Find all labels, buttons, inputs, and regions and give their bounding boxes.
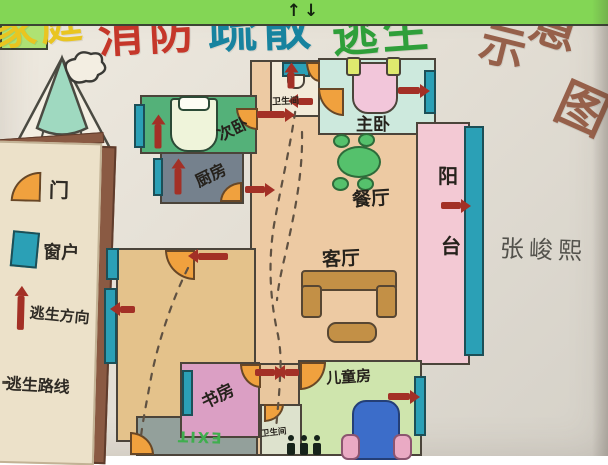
sofa-arm — [376, 285, 397, 318]
window-study — [182, 370, 193, 416]
elevator-people-icons — [0, 443, 608, 455]
legend-window-symbol — [10, 230, 40, 268]
escape-arrow-left — [120, 306, 135, 313]
label-balcony-char1: 阳 — [438, 160, 458, 189]
label-dining-room: 餐厅 — [351, 183, 391, 213]
legend-direction-arrow-symbol — [17, 296, 25, 330]
label-balcony-char2: 台 — [441, 230, 461, 259]
person-icon — [300, 443, 308, 455]
escape-arrow-up — [175, 169, 182, 195]
legend-door-label: 门 — [49, 174, 70, 204]
escape-arrow-left — [285, 369, 299, 376]
coffee-table — [327, 322, 377, 343]
escape-arrow-up — [155, 125, 162, 149]
escape-arrow-right — [388, 393, 410, 400]
label-bathroom-top: 卫生间 — [272, 94, 299, 108]
label-master-bedroom: 主卧 — [356, 110, 390, 135]
bed-pillow — [386, 57, 401, 76]
photo-edge-shadow — [592, 0, 608, 456]
legend-route-label: 逃生路线 — [5, 370, 70, 398]
kids-chair-arm — [393, 434, 412, 460]
escape-arrow-right — [398, 87, 420, 94]
label-living-room: 客厅 — [321, 243, 360, 272]
bed-pillow — [346, 57, 361, 76]
dining-chair — [333, 134, 350, 148]
window-hall-upper — [106, 248, 119, 280]
person-icon — [287, 443, 295, 455]
hand-drawn-fire-escape-diagram: 家庭 消防 疏散 逃生 示 意 图 门 窗户 逃生方向 逃生路线 ↑↓ — [0, 0, 608, 456]
kids-chair-arm — [341, 434, 360, 460]
elevator-arrows: ↑↓ — [0, 0, 608, 26]
escape-arrow-right — [257, 111, 285, 118]
window-second-bedroom — [134, 104, 145, 148]
window-hall-lower — [104, 288, 117, 364]
escape-arrow-right — [441, 202, 461, 209]
escape-arrow-left — [198, 253, 228, 260]
dining-chair — [332, 177, 349, 191]
legend-door-symbol — [11, 171, 42, 202]
escape-arrow-left — [298, 98, 313, 105]
legend-direction-label: 逃生方向 — [29, 302, 91, 329]
legend-window-label: 窗户 — [43, 238, 80, 265]
escape-arrow-right — [255, 369, 275, 376]
window-balcony — [464, 126, 484, 356]
escape-arrow-up — [288, 73, 295, 89]
dining-chair — [358, 133, 375, 147]
window-kids-room — [414, 376, 426, 436]
signature: 张峻熙 — [499, 228, 587, 266]
label-exit: EXIT — [176, 427, 222, 447]
sofa-arm — [301, 285, 322, 318]
cloud-doodle — [66, 52, 106, 82]
window-kitchen — [153, 158, 163, 196]
legend-board: 门 窗户 逃生方向 逃生路线 — [0, 141, 102, 465]
label-kids-room: 儿童房 — [325, 364, 371, 388]
bed-pillow — [178, 96, 210, 111]
escape-arrow-right — [245, 186, 265, 193]
dining-table — [337, 146, 381, 178]
person-icon — [313, 443, 321, 455]
